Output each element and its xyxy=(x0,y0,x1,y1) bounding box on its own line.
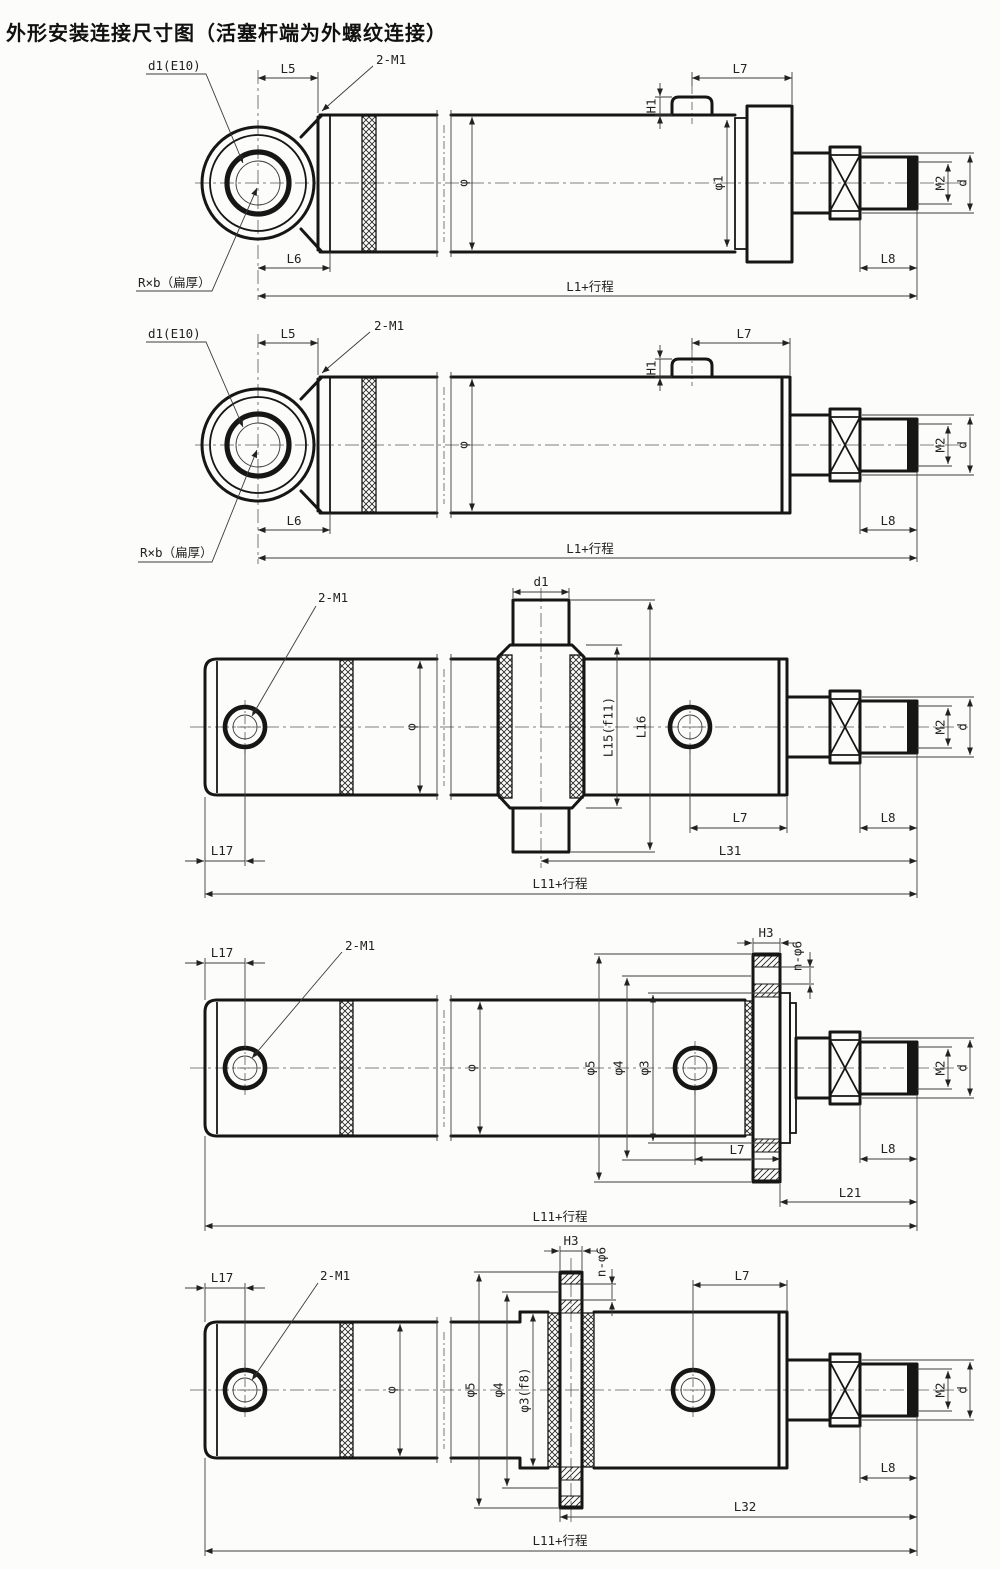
dim-L1-stroke: L1+行程 xyxy=(566,279,614,294)
dim-L8: L8 xyxy=(880,810,895,825)
dim-L7: L7 xyxy=(732,61,747,76)
weld-band xyxy=(362,116,376,251)
weld-band xyxy=(340,1323,353,1457)
dim-phi3f8: φ3(f8) xyxy=(517,1367,532,1412)
dim-Rxb: R×b（扁厚） xyxy=(140,545,213,560)
rod-tip xyxy=(907,158,917,208)
dim-phi: φ xyxy=(456,441,471,449)
dimensions xyxy=(138,332,974,562)
dim-2-M1: 2-M1 xyxy=(374,318,404,333)
rod-tip xyxy=(907,1365,917,1415)
dim-H3: H3 xyxy=(758,925,773,940)
dimension-labels: L17 2-M1 φ φ5 φ4 φ3 H3 n-φ6 M2 d L7 L8 L… xyxy=(211,925,970,1224)
dim-2-M1: 2-M1 xyxy=(345,938,375,953)
dim-Rxb: R×b（扁厚） xyxy=(138,275,211,290)
dim-L7: L7 xyxy=(732,810,747,825)
dim-d: d xyxy=(955,179,970,187)
view-rear-eye-plain: d1(E10) L5 2-M1 φ H1 L7 M2 d L8 L6 R×b（扁… xyxy=(138,318,974,564)
dim-L6: L6 xyxy=(286,251,301,266)
dim-M2: M2 xyxy=(933,719,948,734)
dim-M2: M2 xyxy=(933,175,948,190)
drawing-sheet: 外形安装连接尺寸图（活塞杆端为外螺纹连接） xyxy=(0,0,1000,1569)
centerlines xyxy=(195,70,968,300)
dimension-labels: d1(E10) L5 2-M1 φ H1 L7 M2 d L8 L6 R×b（扁… xyxy=(140,318,970,560)
dim-L17: L17 xyxy=(211,945,234,960)
dim-L8: L8 xyxy=(880,513,895,528)
dim-n-phi6: n-φ6 xyxy=(790,941,805,971)
view-trunnion: 2-M1 d1 φ L15(f11) L16 L17 L7 L8 M2 d L3… xyxy=(185,574,974,898)
dim-d1: d1 xyxy=(533,574,548,589)
dim-2-M1: 2-M1 xyxy=(318,590,348,605)
dim-n-phi6: n-φ6 xyxy=(594,1247,609,1277)
view-rear-eye-with-cap: d1(E10) L5 2-M1 φ H1 L7 φ1 M2 d L8 L6 R×… xyxy=(136,52,974,300)
dim-L8: L8 xyxy=(880,251,895,266)
centerlines xyxy=(190,1010,968,1127)
dim-phi5: φ5 xyxy=(463,1382,478,1397)
dim-L8: L8 xyxy=(880,1141,895,1156)
dim-L16: L16 xyxy=(634,716,649,739)
dim-d1E10: d1(E10) xyxy=(148,326,201,341)
dim-L21: L21 xyxy=(839,1185,862,1200)
dim-M2: M2 xyxy=(933,1382,948,1397)
dim-phi4: φ4 xyxy=(491,1382,506,1397)
dim-phi: φ xyxy=(384,1386,399,1394)
gland-plate xyxy=(735,118,747,249)
cylinder-body xyxy=(205,600,917,852)
dim-L17: L17 xyxy=(211,1270,234,1285)
centerlines xyxy=(195,334,968,564)
rod-tip xyxy=(907,702,917,752)
dim-L7: L7 xyxy=(734,1268,749,1283)
view-mid-flange: L17 2-M1 φ φ5 φ4 φ3(f8) H3 n-φ6 L7 M2 d … xyxy=(185,1233,974,1556)
dim-L15: L15(f11) xyxy=(601,697,616,757)
dim-phi4: φ4 xyxy=(611,1060,626,1075)
dim-2-M1: 2-M1 xyxy=(376,52,406,67)
weld-band xyxy=(340,1001,353,1135)
dim-L17: L17 xyxy=(211,843,234,858)
dim-L11-stroke: L11+行程 xyxy=(532,1533,588,1548)
dimension-labels: 2-M1 d1 φ L15(f11) L16 L17 L7 L8 M2 d L3… xyxy=(211,574,970,891)
dim-L5: L5 xyxy=(280,61,295,76)
dim-L32: L32 xyxy=(734,1499,757,1514)
dim-phi3: φ3 xyxy=(637,1060,652,1075)
dim-M2: M2 xyxy=(933,1060,948,1075)
view-head-flange: L17 2-M1 φ φ5 φ4 φ3 H3 n-φ6 M2 d L7 L8 L… xyxy=(185,925,974,1231)
dim-d1E10: d1(E10) xyxy=(148,58,201,73)
dim-phi: φ xyxy=(464,1064,479,1072)
dim-L7: L7 xyxy=(729,1142,744,1157)
dim-L1-stroke: L1+行程 xyxy=(566,541,614,556)
dim-L7: L7 xyxy=(736,326,751,341)
dim-L11-stroke: L11+行程 xyxy=(532,876,588,891)
dim-H1: H1 xyxy=(644,98,659,113)
dim-H1: H1 xyxy=(644,360,659,375)
dim-d: d xyxy=(955,723,970,731)
head-cap xyxy=(747,106,792,262)
dim-phi: φ xyxy=(404,723,419,731)
cylinder-body xyxy=(202,359,917,518)
rod-tip xyxy=(907,1043,917,1093)
dim-phi5: φ5 xyxy=(583,1060,598,1075)
dim-L6: L6 xyxy=(286,513,301,528)
technical-drawing: d1(E10) L5 2-M1 φ H1 L7 φ1 M2 d L8 L6 R×… xyxy=(0,0,1000,1569)
dim-M2: M2 xyxy=(933,437,948,452)
weld-band xyxy=(340,660,353,794)
centerlines xyxy=(190,1258,968,1522)
dim-d: d xyxy=(955,1064,970,1072)
dimension-labels: d1(E10) L5 2-M1 φ H1 L7 φ1 M2 d L8 L6 R×… xyxy=(138,52,970,294)
cylinder-body xyxy=(202,97,917,262)
dim-d: d xyxy=(955,1386,970,1394)
dim-phi1: φ1 xyxy=(711,175,726,190)
dim-L5: L5 xyxy=(280,326,295,341)
dim-L31: L31 xyxy=(719,843,742,858)
dim-d: d xyxy=(955,441,970,449)
rod-tip xyxy=(907,420,917,470)
dim-H3: H3 xyxy=(563,1233,578,1248)
dim-L8: L8 xyxy=(880,1460,895,1475)
dim-phi: φ xyxy=(456,179,471,187)
dim-2-M1: 2-M1 xyxy=(320,1268,350,1283)
dim-L11-stroke: L11+行程 xyxy=(532,1209,588,1224)
weld-band xyxy=(362,378,376,512)
